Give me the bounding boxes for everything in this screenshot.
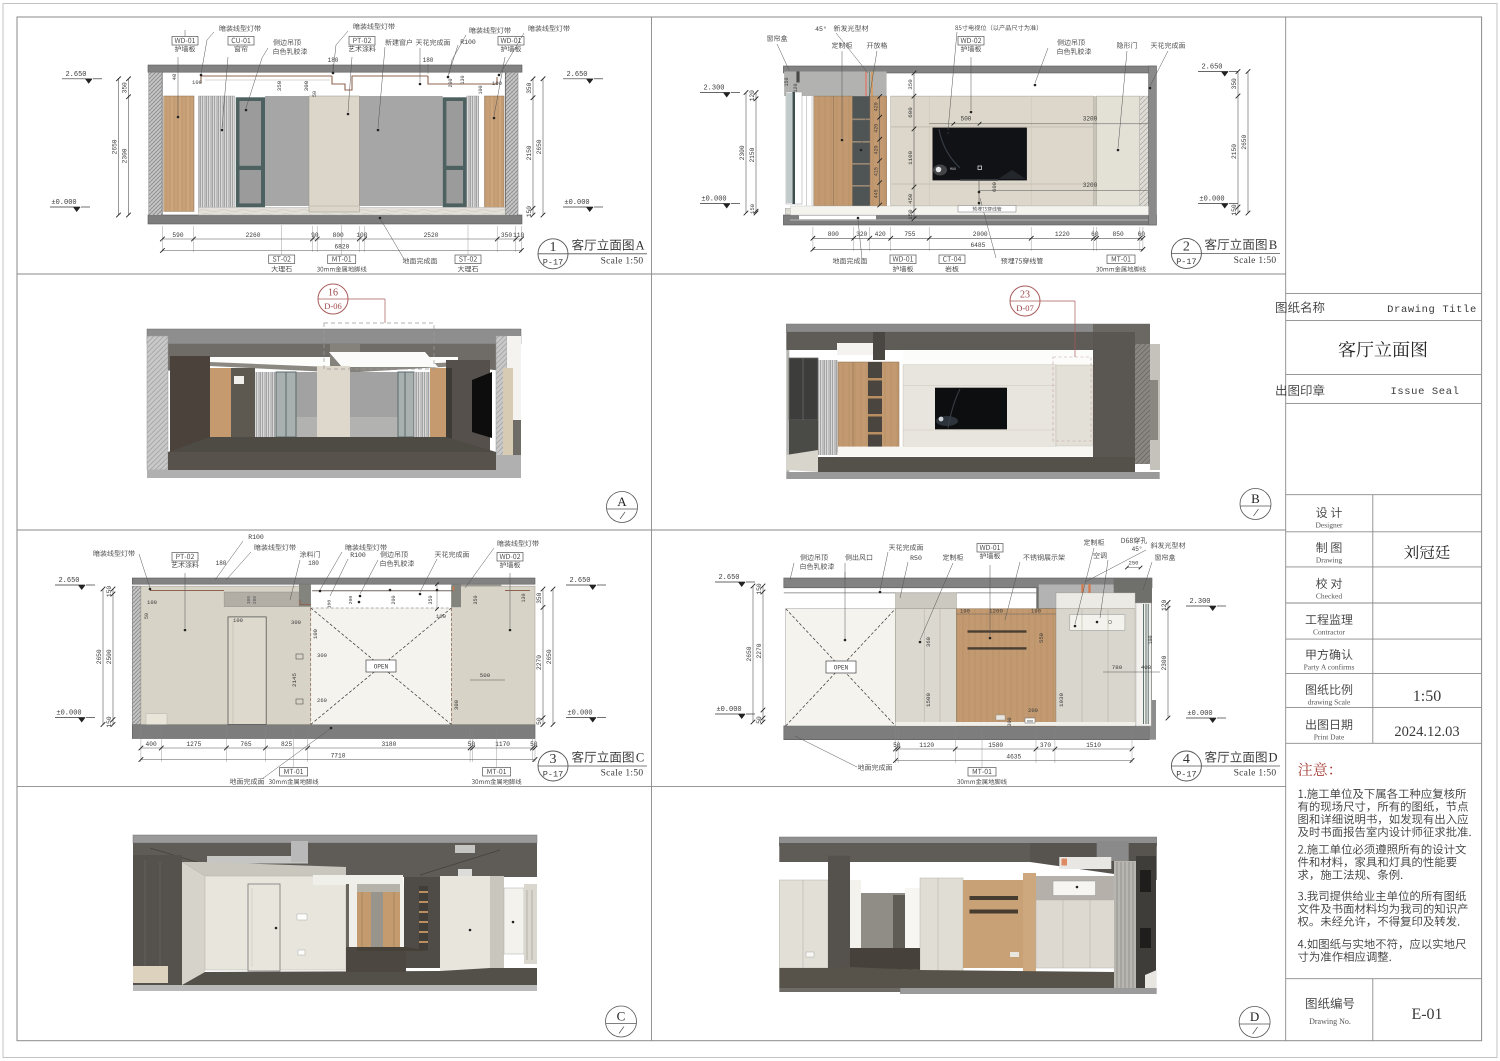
svg-text:P-17: P-17 — [1176, 257, 1196, 267]
svg-text:Scale 1:50: Scale 1:50 — [1234, 769, 1277, 779]
svg-text:16: 16 — [328, 288, 338, 299]
svg-text:1200: 1200 — [989, 608, 1003, 615]
svg-text:100: 100 — [192, 79, 202, 86]
svg-text:23: 23 — [1020, 290, 1030, 301]
svg-text:2.650: 2.650 — [58, 577, 79, 585]
svg-text:600: 600 — [991, 182, 998, 192]
svg-text:D-06: D-06 — [324, 301, 341, 311]
svg-text:360: 360 — [925, 637, 932, 647]
svg-text:2.650: 2.650 — [569, 577, 590, 585]
svg-text:45°: 45° — [815, 25, 827, 33]
svg-text:6485: 6485 — [970, 242, 985, 249]
svg-text:C: C — [617, 1009, 626, 1024]
svg-text:Drawing Title: Drawing Title — [1387, 304, 1477, 316]
svg-text:100: 100 — [246, 596, 252, 604]
svg-text:1100: 1100 — [907, 150, 914, 164]
svg-text:100: 100 — [312, 629, 319, 639]
svg-text:2650: 2650 — [546, 649, 553, 664]
svg-text:150: 150 — [749, 204, 756, 214]
svg-text:150: 150 — [106, 586, 113, 597]
svg-text:6820: 6820 — [334, 243, 349, 250]
svg-text:1275: 1275 — [186, 741, 201, 748]
svg-text:250: 250 — [1129, 560, 1139, 567]
svg-text:420: 420 — [874, 145, 880, 154]
svg-text:Print Date: Print Date — [1314, 733, 1345, 742]
svg-text:D: D — [1268, 751, 1277, 765]
svg-text:60: 60 — [1138, 231, 1146, 238]
svg-text:C: C — [636, 751, 644, 765]
svg-text:100: 100 — [233, 617, 243, 624]
svg-text:550: 550 — [1038, 633, 1045, 643]
svg-text:300: 300 — [317, 652, 327, 659]
svg-text:400: 400 — [146, 741, 157, 748]
svg-text:60: 60 — [1091, 231, 1099, 238]
svg-text:320: 320 — [856, 231, 867, 238]
svg-text:2650: 2650 — [1241, 134, 1248, 149]
svg-text:200: 200 — [448, 78, 454, 87]
svg-text:100: 100 — [327, 600, 333, 609]
svg-text:350: 350 — [1231, 78, 1238, 89]
svg-text:2500: 2500 — [106, 649, 113, 664]
svg-text:2650: 2650 — [746, 646, 753, 661]
svg-text:180: 180 — [423, 57, 434, 64]
svg-text:350: 350 — [501, 232, 512, 239]
svg-text:300: 300 — [291, 619, 301, 626]
svg-text:50: 50 — [312, 91, 318, 97]
svg-text:500: 500 — [480, 672, 491, 679]
svg-text:Drawing: Drawing — [1316, 556, 1342, 565]
svg-text:3: 3 — [550, 752, 557, 767]
svg-text:755: 755 — [904, 231, 915, 238]
svg-text:2520: 2520 — [424, 232, 439, 239]
svg-text:445: 445 — [874, 189, 880, 198]
svg-text:370: 370 — [1040, 742, 1051, 749]
svg-text:±0.000: ±0.000 — [716, 706, 741, 714]
svg-text:120: 120 — [749, 90, 756, 101]
svg-text:4: 4 — [1183, 752, 1190, 767]
svg-text:1: 1 — [550, 240, 557, 255]
svg-text:Scale 1:50: Scale 1:50 — [601, 769, 644, 779]
svg-text:500: 500 — [961, 116, 972, 123]
svg-text:P-17: P-17 — [1176, 770, 1196, 780]
svg-text:120: 120 — [1161, 600, 1168, 611]
svg-text:2300: 2300 — [121, 148, 128, 163]
svg-text:600: 600 — [907, 107, 914, 118]
svg-text:800: 800 — [333, 232, 344, 239]
svg-text:110: 110 — [513, 232, 524, 239]
svg-text:350: 350 — [907, 79, 914, 90]
svg-text:2650: 2650 — [96, 649, 103, 664]
svg-text:Designer: Designer — [1315, 521, 1343, 530]
svg-text:415: 415 — [874, 167, 880, 176]
svg-text:±0.000: ±0.000 — [567, 710, 592, 718]
svg-text:±0.000: ±0.000 — [51, 199, 76, 207]
svg-text:1500: 1500 — [925, 693, 932, 707]
svg-text:3200: 3200 — [1083, 182, 1098, 189]
svg-text:2150: 2150 — [1231, 144, 1238, 159]
svg-text:±0.000: ±0.000 — [1187, 710, 1212, 718]
svg-text:OPEN: OPEN — [374, 664, 389, 671]
svg-text:400: 400 — [1141, 664, 1152, 671]
svg-text:±0.000: ±0.000 — [56, 710, 81, 718]
svg-text:100: 100 — [478, 85, 484, 94]
svg-text:350: 350 — [526, 82, 533, 93]
svg-text:420: 420 — [874, 102, 880, 111]
svg-text:420: 420 — [874, 124, 880, 133]
svg-text:Party A confirms: Party A confirms — [1304, 663, 1355, 672]
svg-text:180: 180 — [216, 560, 227, 567]
svg-text:Issue Seal: Issue Seal — [1390, 386, 1459, 398]
svg-text:1:50: 1:50 — [1413, 688, 1441, 705]
svg-text:2300: 2300 — [1161, 655, 1168, 670]
svg-text:150: 150 — [756, 583, 763, 594]
svg-text:200: 200 — [348, 596, 354, 605]
svg-text:2.650: 2.650 — [65, 71, 86, 79]
svg-text:P-17: P-17 — [543, 770, 563, 780]
svg-text:±0.000: ±0.000 — [1199, 196, 1224, 204]
svg-text:180: 180 — [308, 560, 319, 567]
svg-text:300: 300 — [303, 80, 310, 91]
svg-text:2145: 2145 — [291, 673, 298, 687]
svg-text:850: 850 — [1113, 231, 1124, 238]
svg-text:R100: R100 — [350, 552, 366, 559]
svg-text:B: B — [1269, 238, 1277, 252]
svg-text:Checked: Checked — [1316, 592, 1342, 601]
svg-text:2.300: 2.300 — [1189, 598, 1210, 606]
svg-text:200: 200 — [1028, 707, 1038, 714]
svg-text:2.300: 2.300 — [703, 85, 724, 93]
svg-text:Scale 1:50: Scale 1:50 — [601, 257, 644, 267]
svg-text:45°: 45° — [1132, 546, 1143, 553]
svg-text:765: 765 — [240, 741, 251, 748]
svg-text:50: 50 — [893, 742, 901, 749]
svg-text:450: 450 — [907, 193, 914, 204]
svg-text:130: 130 — [460, 75, 466, 84]
svg-text:300: 300 — [1007, 717, 1013, 726]
svg-text:1120: 1120 — [919, 742, 934, 749]
svg-text:50: 50 — [468, 741, 476, 748]
svg-text:2270: 2270 — [756, 643, 763, 658]
svg-text:###: ### — [1027, 720, 1033, 724]
svg-text:1580: 1580 — [988, 742, 1003, 749]
svg-text:drawing Scale: drawing Scale — [1308, 698, 1351, 707]
svg-text:1930: 1930 — [1058, 693, 1065, 707]
svg-text:D-07: D-07 — [1016, 303, 1033, 313]
svg-text:50: 50 — [144, 613, 150, 619]
svg-text:±0.000: ±0.000 — [564, 199, 589, 207]
svg-text:1510: 1510 — [1086, 742, 1101, 749]
svg-text:350: 350 — [428, 595, 434, 604]
svg-text:2650: 2650 — [536, 139, 543, 154]
svg-text:E-01: E-01 — [1411, 1006, 1442, 1023]
svg-text:2260: 2260 — [246, 232, 261, 239]
svg-text:2: 2 — [1183, 239, 1190, 254]
svg-text:350: 350 — [276, 80, 283, 91]
svg-text:R100: R100 — [460, 39, 476, 46]
svg-text:2300: 2300 — [739, 145, 746, 160]
svg-text:180: 180 — [328, 57, 339, 64]
svg-text:3180: 3180 — [381, 741, 396, 748]
svg-text:590: 590 — [172, 232, 183, 239]
svg-text:D: D — [1250, 1009, 1259, 1024]
svg-text:100: 100 — [147, 599, 157, 606]
svg-text:100: 100 — [436, 613, 446, 620]
svg-text:420: 420 — [875, 231, 886, 238]
svg-text:50: 50 — [756, 716, 763, 724]
svg-text:300: 300 — [453, 700, 460, 710]
svg-text:350: 350 — [121, 82, 128, 93]
svg-text:Scale 1:50: Scale 1:50 — [1234, 256, 1277, 266]
svg-text:800: 800 — [828, 231, 839, 238]
svg-text:2270: 2270 — [536, 655, 543, 670]
svg-text:200: 200 — [391, 595, 397, 604]
svg-text:150: 150 — [907, 209, 914, 220]
svg-text:190: 190 — [960, 608, 970, 615]
svg-text:780: 780 — [1112, 664, 1123, 671]
svg-text:A: A — [617, 494, 627, 509]
svg-text:2.650: 2.650 — [1201, 64, 1222, 72]
svg-text:100: 100 — [1148, 635, 1154, 644]
svg-text:R100: R100 — [248, 534, 264, 541]
svg-text:100: 100 — [356, 232, 367, 239]
svg-text:3200: 3200 — [1083, 116, 1098, 123]
svg-text:200: 200 — [252, 596, 258, 604]
svg-text:350: 350 — [473, 595, 479, 604]
svg-text:OPEN: OPEN — [834, 665, 849, 672]
svg-text:2024.12.03: 2024.12.03 — [1394, 724, 1459, 740]
svg-text:2650: 2650 — [111, 139, 118, 154]
svg-text:190: 190 — [1031, 608, 1041, 615]
svg-text:2.650: 2.650 — [718, 574, 739, 582]
svg-text:Drawing No.: Drawing No. — [1309, 1017, 1351, 1026]
svg-text:P-17: P-17 — [543, 257, 563, 267]
svg-text:A: A — [635, 239, 644, 253]
svg-text:120: 120 — [793, 83, 799, 92]
svg-text:825: 825 — [281, 741, 292, 748]
svg-text:1170: 1170 — [495, 741, 510, 748]
svg-text:130: 130 — [521, 593, 527, 602]
svg-text:260: 260 — [317, 697, 327, 704]
svg-text:150: 150 — [784, 77, 790, 86]
svg-text:350: 350 — [536, 592, 543, 603]
svg-text:50: 50 — [536, 717, 543, 725]
svg-text:90: 90 — [311, 232, 319, 239]
svg-text:±0.000: ±0.000 — [701, 196, 726, 204]
svg-text:7710: 7710 — [331, 752, 346, 759]
svg-text:2.650: 2.650 — [566, 71, 587, 79]
svg-text:2000: 2000 — [973, 231, 988, 238]
svg-text:R50: R50 — [910, 555, 922, 562]
svg-text:M88: M88 — [950, 168, 956, 172]
svg-text:4635: 4635 — [1006, 753, 1021, 760]
svg-text:150: 150 — [1231, 204, 1238, 215]
svg-text:2150: 2150 — [526, 145, 533, 160]
svg-text:2150: 2150 — [749, 147, 756, 162]
svg-text:50: 50 — [530, 741, 538, 748]
svg-text:B: B — [1251, 491, 1260, 506]
svg-text:1220: 1220 — [1055, 231, 1070, 238]
svg-text:40: 40 — [171, 74, 178, 81]
svg-text:Contractor: Contractor — [1313, 628, 1346, 637]
svg-text:150: 150 — [106, 716, 113, 727]
svg-text:150: 150 — [526, 206, 533, 217]
